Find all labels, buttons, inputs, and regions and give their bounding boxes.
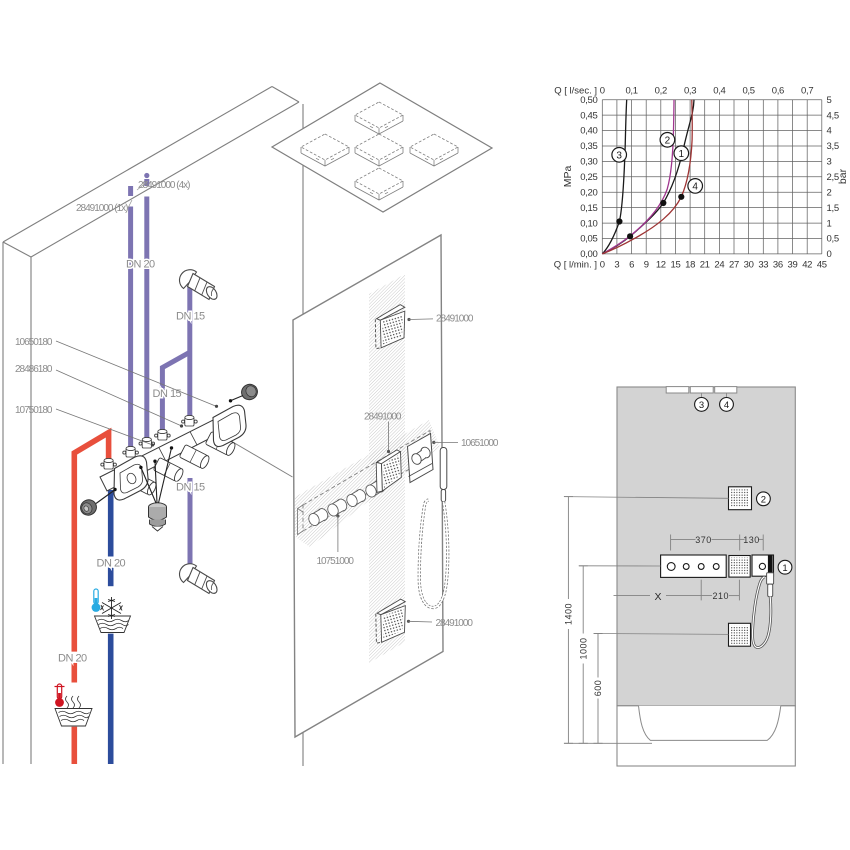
svg-text:24: 24 — [714, 260, 724, 271]
svg-text:4,5: 4,5 — [827, 110, 839, 121]
svg-text:1,5: 1,5 — [827, 203, 839, 214]
svg-text:0,7: 0,7 — [801, 86, 813, 97]
svg-text:28491000 (4x): 28491000 (4x) — [138, 180, 190, 191]
svg-text:0,3: 0,3 — [684, 86, 696, 97]
svg-text:4: 4 — [827, 126, 832, 137]
svg-text:DN 15: DN 15 — [153, 388, 182, 400]
svg-text:370: 370 — [695, 535, 712, 545]
svg-text:0,50: 0,50 — [580, 95, 597, 106]
svg-text:28491000: 28491000 — [436, 618, 474, 629]
svg-text:0,5: 0,5 — [742, 86, 754, 97]
svg-text:DN 15: DN 15 — [176, 311, 205, 323]
svg-text:0,45: 0,45 — [580, 110, 597, 121]
svg-text:X: X — [654, 591, 661, 603]
svg-text:28491000: 28491000 — [436, 314, 474, 325]
svg-text:10751000: 10751000 — [317, 556, 355, 567]
svg-text:600: 600 — [593, 680, 603, 697]
svg-text:10650180: 10650180 — [15, 337, 53, 348]
svg-text:4: 4 — [724, 400, 729, 411]
svg-text:2: 2 — [827, 187, 832, 198]
svg-text:1000: 1000 — [578, 637, 588, 659]
svg-text:0,20: 0,20 — [580, 187, 597, 198]
svg-text:42: 42 — [802, 260, 812, 271]
svg-text:210: 210 — [713, 591, 730, 601]
svg-text:10651000: 10651000 — [461, 438, 499, 449]
svg-text:DN 15: DN 15 — [176, 482, 205, 494]
svg-text:28486180: 28486180 — [15, 364, 53, 375]
svg-text:5: 5 — [827, 95, 832, 106]
svg-text:0,30: 0,30 — [580, 157, 597, 168]
svg-text:2: 2 — [761, 494, 766, 505]
svg-text:3: 3 — [827, 157, 832, 168]
svg-text:9: 9 — [644, 260, 649, 271]
svg-text:MPa: MPa — [562, 166, 574, 188]
svg-text:0,40: 0,40 — [580, 126, 597, 137]
svg-text:18: 18 — [685, 260, 695, 271]
svg-text:45: 45 — [817, 260, 827, 271]
svg-text:0,4: 0,4 — [713, 86, 725, 97]
svg-text:DN 20: DN 20 — [126, 259, 155, 271]
svg-text:DN 20: DN 20 — [97, 558, 126, 570]
svg-text:0: 0 — [600, 86, 605, 97]
svg-text:4: 4 — [692, 182, 698, 193]
svg-text:1400: 1400 — [564, 603, 574, 625]
svg-text:10750180: 10750180 — [15, 405, 53, 416]
svg-text:0,25: 0,25 — [580, 172, 597, 183]
svg-text:1: 1 — [782, 563, 787, 574]
svg-text:30: 30 — [744, 260, 754, 271]
svg-text:21: 21 — [700, 260, 710, 271]
svg-text:33: 33 — [758, 260, 768, 271]
svg-text:1: 1 — [679, 149, 685, 160]
svg-text:3,5: 3,5 — [827, 141, 839, 152]
svg-text:0,1: 0,1 — [625, 86, 637, 97]
svg-text:DN 20: DN 20 — [58, 653, 87, 665]
svg-text:0,35: 0,35 — [580, 141, 597, 152]
svg-text:39: 39 — [788, 260, 798, 271]
svg-text:3: 3 — [616, 150, 622, 161]
svg-text:0,00: 0,00 — [580, 249, 597, 260]
svg-text:0,10: 0,10 — [580, 218, 597, 229]
svg-text:28491000 (1x): 28491000 (1x) — [76, 203, 128, 214]
svg-text:28491000: 28491000 — [364, 412, 402, 423]
svg-text:3: 3 — [699, 400, 704, 411]
svg-text:15: 15 — [671, 260, 681, 271]
svg-text:36: 36 — [773, 260, 783, 271]
svg-text:0: 0 — [600, 260, 605, 271]
svg-text:27: 27 — [729, 260, 739, 271]
svg-text:1: 1 — [827, 218, 832, 229]
svg-text:0,2: 0,2 — [655, 86, 667, 97]
svg-text:0: 0 — [827, 249, 832, 260]
svg-text:2: 2 — [665, 135, 671, 146]
svg-text:12: 12 — [656, 260, 666, 271]
svg-text:130: 130 — [743, 535, 760, 545]
svg-text:bar: bar — [837, 168, 849, 184]
svg-text:0,5: 0,5 — [827, 234, 839, 245]
svg-text:0,05: 0,05 — [580, 234, 597, 245]
svg-text:3: 3 — [614, 260, 619, 271]
svg-text:6: 6 — [629, 260, 634, 271]
svg-text:0,15: 0,15 — [580, 203, 597, 214]
svg-text:0,6: 0,6 — [772, 86, 784, 97]
svg-text:Q [ l/sec. ]: Q [ l/sec. ] — [554, 86, 597, 97]
svg-text:Q [ l/min. ]: Q [ l/min. ] — [554, 260, 597, 271]
